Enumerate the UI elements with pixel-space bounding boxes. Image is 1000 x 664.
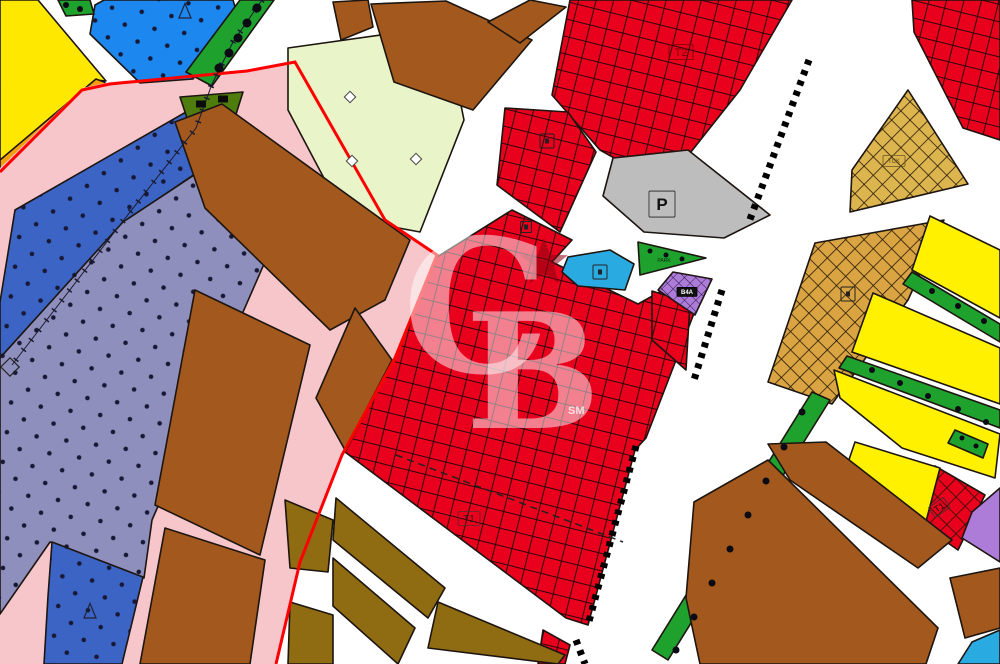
- facility-box-icon-mark: [545, 139, 549, 144]
- tree-dot: [925, 393, 931, 399]
- building-rect: [218, 96, 228, 103]
- ladder-road-1: [749, 60, 809, 222]
- parcel-olive-s-2: [288, 602, 333, 664]
- zone-label-t1: T1: [463, 514, 475, 525]
- parcel-brown-top-1: [333, 0, 373, 40]
- zoning-map-screenshot[interactable]: T2PT1T1B4ATCKPARK C B SM: [0, 0, 1000, 664]
- tree-dot: [745, 512, 752, 519]
- zoning-map-svg[interactable]: T2PT1T1B4ATCKPARK C B SM: [0, 0, 1000, 664]
- tree-dot: [869, 367, 875, 373]
- parcel-brown-se-3: [950, 568, 1000, 638]
- tree-dot: [691, 614, 698, 621]
- watermark-letter-b: B: [465, 278, 600, 466]
- tree-dot: [673, 647, 680, 654]
- tree-dot: [763, 478, 770, 485]
- tree-dot: [974, 444, 979, 449]
- tree-dot: [63, 2, 69, 8]
- tree-dot: [799, 409, 806, 416]
- tree-dot: [234, 34, 243, 43]
- building-rect: [196, 101, 206, 108]
- tree-dot: [709, 580, 716, 587]
- zone-label-park-group: PARK: [657, 258, 671, 264]
- tree-dot: [929, 288, 935, 294]
- tree-dot: [77, 6, 83, 12]
- parcel-gold-tck: [850, 90, 968, 212]
- zone-label-b4a: B4A: [681, 290, 694, 296]
- facility-box-icon-mark: [598, 270, 602, 275]
- zone-label-parking: P: [656, 195, 667, 214]
- parcel-gray-parking: [603, 150, 770, 238]
- tree-dot: [781, 444, 788, 451]
- watermark-sm: SM: [568, 405, 585, 417]
- tree-dot: [253, 4, 262, 13]
- tree-dot: [983, 419, 989, 425]
- facility-box-icon-mark: [846, 292, 850, 297]
- tree-dot: [981, 318, 987, 324]
- park-tree-dot: [680, 257, 685, 262]
- ladder-road-2b: [576, 640, 585, 664]
- tree-dot: [897, 380, 903, 386]
- tree-dot: [243, 19, 252, 28]
- zone-label-t2: T2: [675, 47, 688, 59]
- tree-dot: [960, 436, 965, 441]
- parcel-green-park-triangle: [638, 242, 706, 275]
- zone-label-tck: TCK: [888, 159, 900, 165]
- tree-dot: [727, 546, 734, 553]
- tree-dot: [955, 303, 961, 309]
- tree-dot: [225, 49, 234, 58]
- tree-dot: [215, 64, 224, 73]
- zone-label-park: PARK: [657, 258, 671, 264]
- green-strip-nw-small: [58, 0, 94, 16]
- zone-label-b4a-group: B4A: [677, 287, 697, 296]
- tree-dot: [955, 406, 961, 412]
- park-tree-dot: [648, 249, 653, 254]
- park-tree-dot: [664, 253, 669, 258]
